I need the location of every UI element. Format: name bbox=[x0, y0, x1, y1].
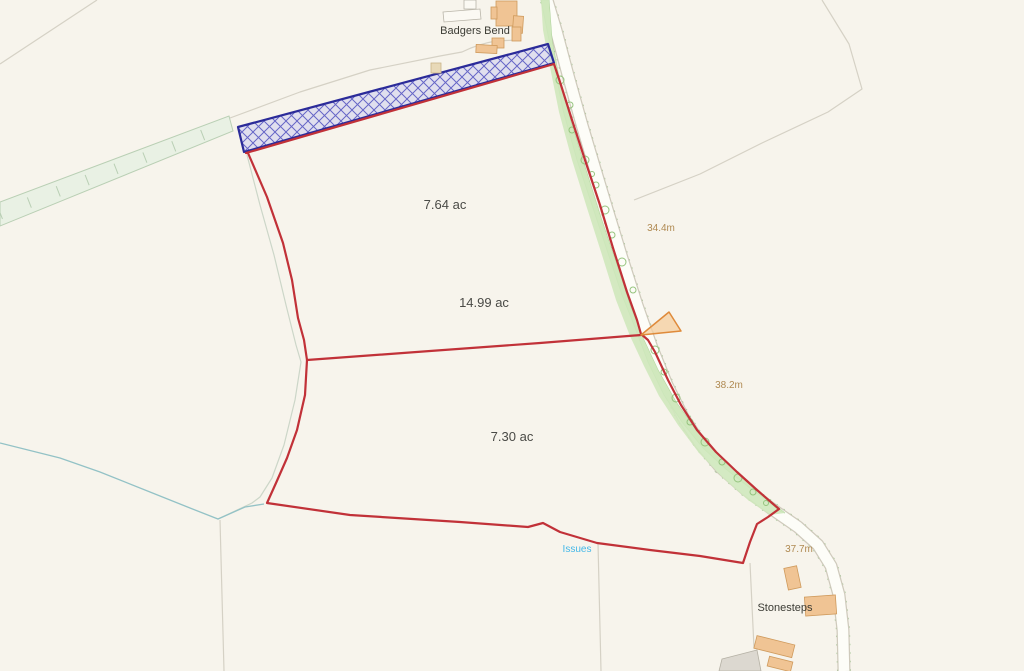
place-label-stonesteps: Stonesteps bbox=[757, 602, 813, 614]
map-svg[interactable]: Badgers Bend Stonesteps 7.64 ac 14.99 ac… bbox=[0, 0, 1024, 671]
building-annex-2 bbox=[512, 27, 521, 41]
area-label-top-field: 7.64 ac bbox=[424, 197, 467, 212]
map-canvas[interactable]: Badgers Bend Stonesteps 7.64 ac 14.99 ac… bbox=[0, 0, 1024, 671]
elevation-label-1: 34.4m bbox=[647, 223, 675, 234]
area-label-total: 14.99 ac bbox=[459, 295, 509, 310]
building-annex-4 bbox=[476, 44, 497, 53]
elevation-label-2: 38.2m bbox=[715, 380, 743, 391]
building-white-small bbox=[464, 0, 476, 9]
elevation-label-3: 37.7m bbox=[785, 544, 813, 555]
building-wing bbox=[491, 7, 497, 19]
map-background bbox=[0, 0, 1024, 671]
area-label-bottom-field: 7.30 ac bbox=[491, 429, 534, 444]
place-label-badgers-bend: Badgers Bend bbox=[440, 25, 510, 37]
water-label-issues: Issues bbox=[563, 544, 592, 555]
building-outbuilding bbox=[431, 63, 441, 73]
